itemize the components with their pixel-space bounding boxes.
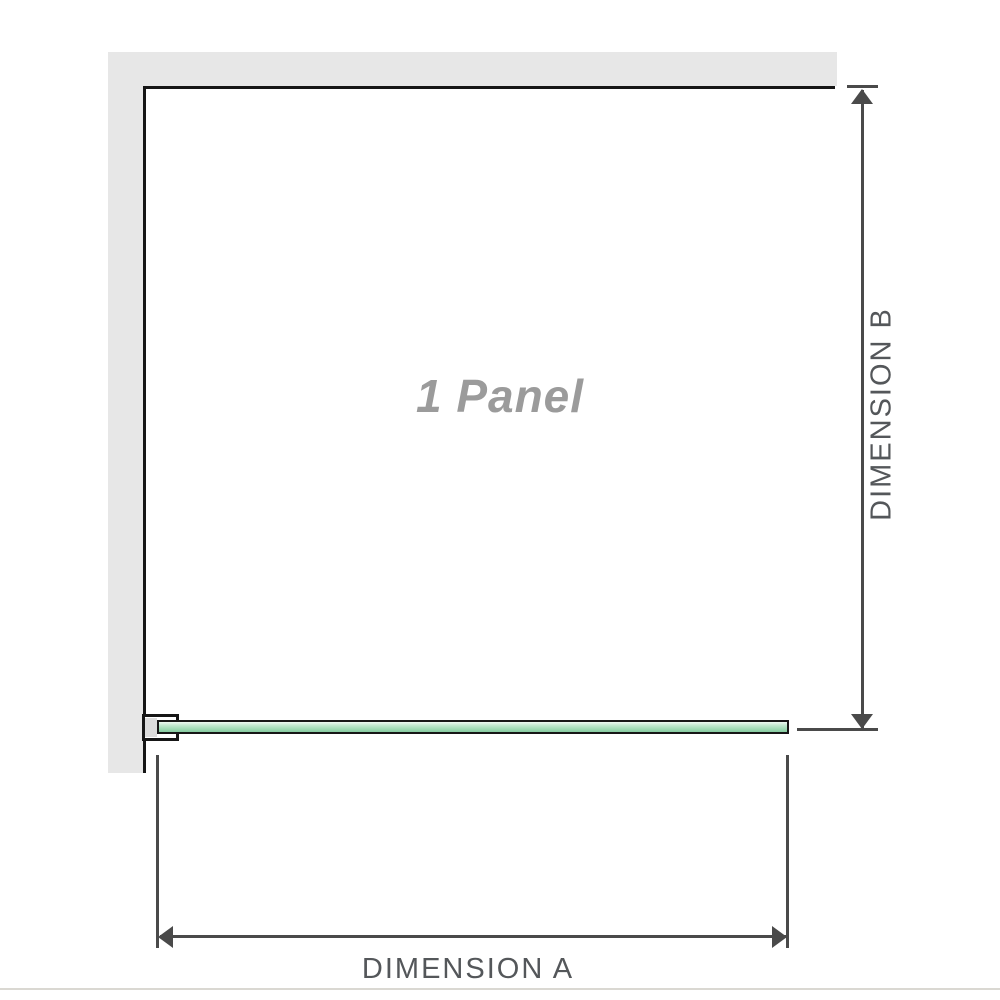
glass-panel-top-view	[157, 720, 789, 734]
dimension-a-extension-right	[786, 755, 789, 948]
panel-front-outline	[143, 86, 835, 773]
dimension-a-extension-left	[156, 755, 159, 948]
shower-panel-dimension-diagram: 1 Panel DIMENSION B DIMENSION A	[0, 0, 1000, 1000]
page-divider-line	[0, 988, 1000, 990]
bracket-pad	[145, 718, 157, 737]
arrow-down-icon	[851, 714, 873, 729]
dimension-a-line	[160, 935, 787, 938]
wall-left	[108, 52, 143, 773]
arrow-left-icon	[158, 926, 173, 948]
arrow-right-icon	[772, 926, 787, 948]
dimension-b-line	[861, 90, 864, 728]
panel-count-label: 1 Panel	[416, 369, 584, 423]
dimension-a-label: DIMENSION A	[362, 953, 574, 986]
arrow-up-icon	[851, 89, 873, 104]
dimension-b-tick-top	[847, 85, 878, 88]
dimension-b-label: DIMENSION B	[866, 307, 899, 521]
wall-top	[108, 52, 837, 86]
